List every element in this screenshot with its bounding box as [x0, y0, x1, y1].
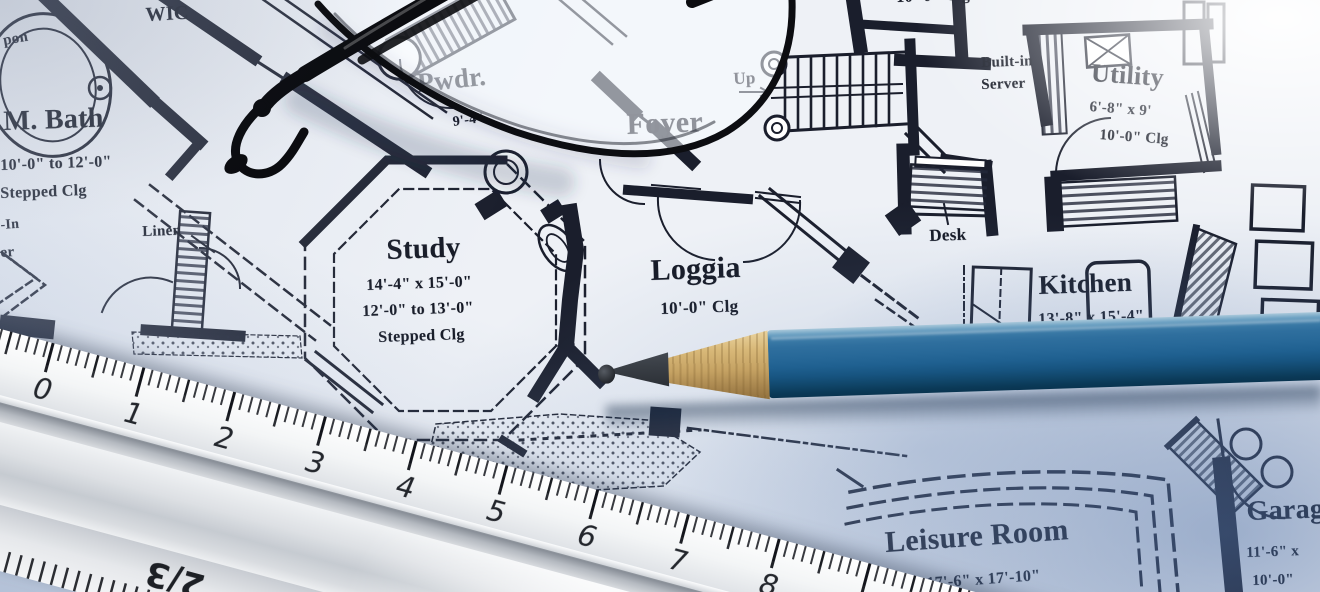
ruler-number-7: 7 [662, 542, 693, 578]
ruler-number-5: 5 [481, 493, 512, 529]
ruler-number-6: 6 [571, 518, 602, 554]
pencil-body [767, 312, 1320, 398]
pencil-tip [598, 364, 616, 384]
blueprint-photo: ponWICM. Bath10'-0" to 12'-0"Stepped Clg… [0, 0, 1320, 592]
ruler-number-8: 8 [753, 567, 784, 592]
ruler-scale-fraction-label: 2/3 [141, 552, 209, 592]
ruler-number-1: 1 [118, 395, 149, 431]
ruler-number-0: 0 [27, 371, 58, 407]
ruler-number-2: 2 [208, 420, 239, 456]
ruler-number-4: 4 [390, 469, 421, 505]
ruler-number-3: 3 [299, 444, 330, 480]
